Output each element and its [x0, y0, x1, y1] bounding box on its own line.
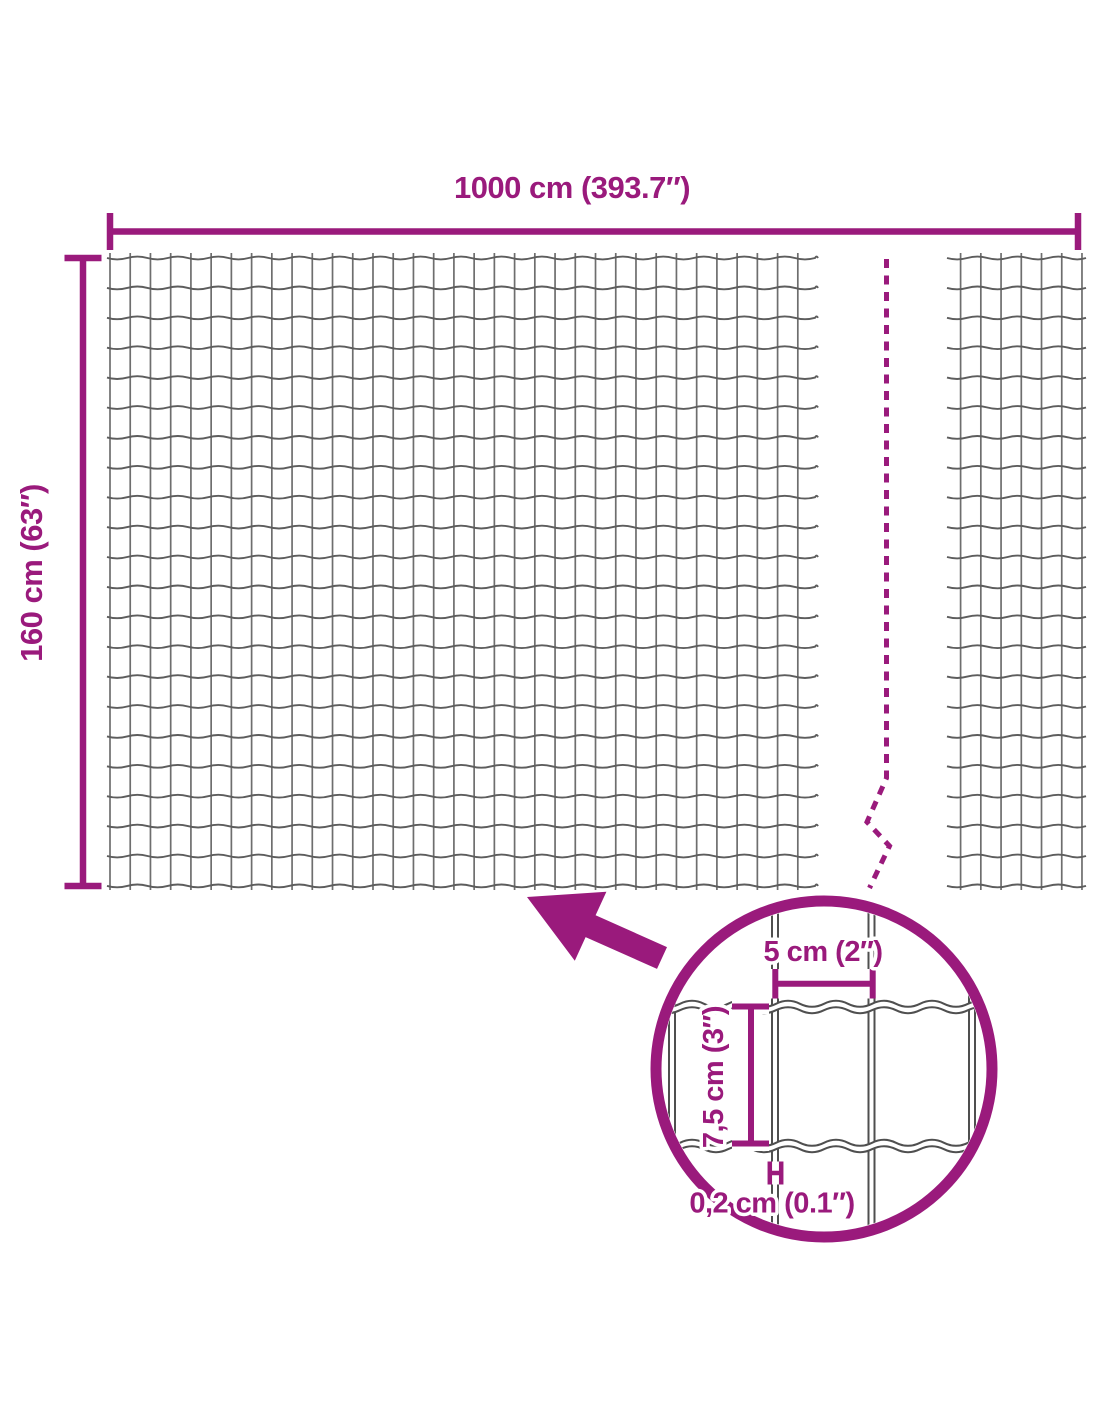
mesh-height-label: 7,5 cm (3″) [698, 1006, 730, 1148]
width-dimension-label: 1000 cm (393.7″) [454, 170, 690, 205]
background [0, 0, 1100, 1422]
wire-thickness-label: 0,2 cm (0.1″) [689, 1188, 854, 1220]
height-dimension-label: 160 cm (63″) [14, 484, 49, 662]
detail-magnifier: 5 cm (2″) 7,5 cm (3″) 0,2 cm (0.1″) [656, 901, 992, 1237]
fence-dimension-diagram: 1000 cm (393.7″) 160 cm (63″) 5 cm (2″) [0, 0, 1100, 1422]
mesh-width-label: 5 cm (2″) [764, 936, 883, 968]
